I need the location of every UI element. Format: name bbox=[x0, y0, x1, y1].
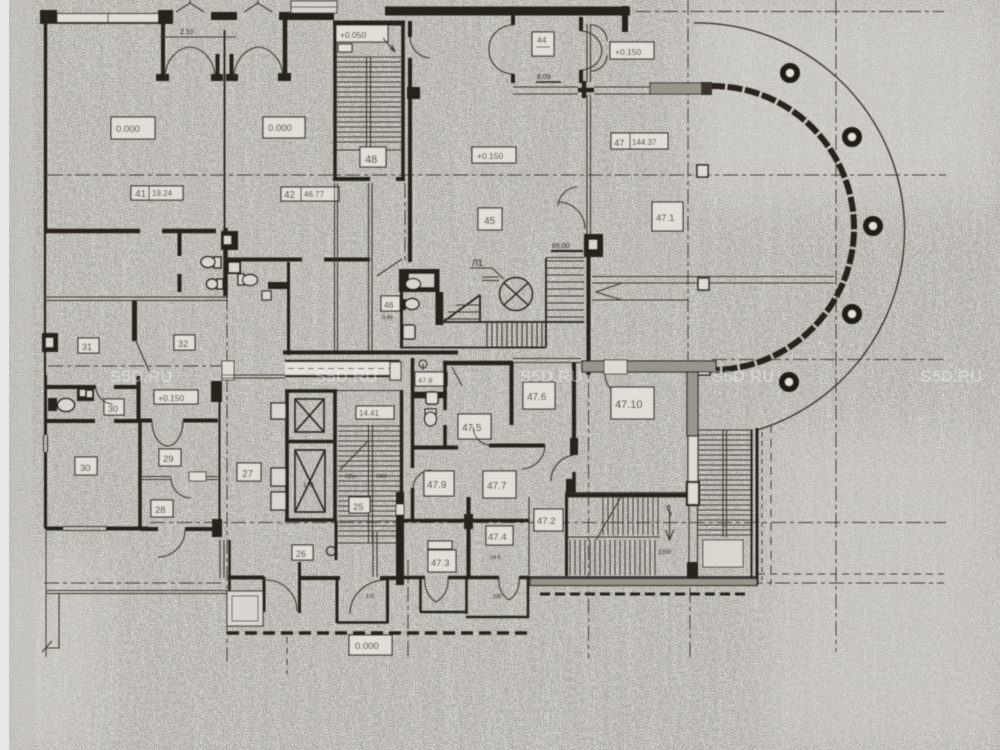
svg-text:31: 31 bbox=[82, 342, 92, 352]
svg-text:26: 26 bbox=[296, 549, 306, 559]
svg-text:8.09: 8.09 bbox=[537, 74, 551, 81]
svg-text:30: 30 bbox=[80, 463, 91, 474]
svg-text:0.000: 0.000 bbox=[116, 124, 140, 135]
svg-text:46.77: 46.77 bbox=[304, 190, 325, 199]
svg-text:47.7: 47.7 bbox=[487, 481, 507, 492]
svg-text:25: 25 bbox=[353, 502, 364, 513]
svg-text:190: 190 bbox=[493, 594, 502, 600]
svg-text:S5D.RU: S5D.RU bbox=[520, 367, 582, 386]
svg-text:47.1: 47.1 bbox=[656, 213, 675, 224]
svg-text:29: 29 bbox=[163, 454, 174, 465]
svg-text:32: 32 bbox=[178, 339, 188, 349]
svg-text:14.6: 14.6 bbox=[490, 555, 501, 561]
svg-text:46: 46 bbox=[384, 300, 394, 310]
svg-text:S5D.RU: S5D.RU bbox=[712, 367, 774, 386]
svg-text:48: 48 bbox=[365, 154, 377, 166]
svg-text:+0.050: +0.050 bbox=[340, 30, 367, 40]
svg-text:27: 27 bbox=[242, 469, 254, 480]
svg-text:+0.150: +0.150 bbox=[615, 47, 642, 57]
svg-text:66.00: 66.00 bbox=[552, 243, 570, 250]
svg-text:+0.150: +0.150 bbox=[477, 151, 504, 161]
svg-text:47.2: 47.2 bbox=[537, 516, 556, 527]
svg-text:28: 28 bbox=[155, 505, 166, 516]
svg-text:44: 44 bbox=[537, 35, 547, 45]
svg-text:170: 170 bbox=[366, 594, 375, 600]
svg-text:+0.150: +0.150 bbox=[158, 393, 185, 403]
svg-text:30: 30 bbox=[108, 404, 118, 414]
svg-text:135o: 135o bbox=[345, 474, 356, 480]
svg-text:S5D.RU: S5D.RU bbox=[920, 367, 982, 386]
svg-text:1200: 1200 bbox=[658, 550, 672, 556]
svg-text:2.10: 2.10 bbox=[180, 29, 194, 36]
svg-text:41: 41 bbox=[135, 189, 147, 200]
svg-text:S5D.RU: S5D.RU bbox=[315, 367, 377, 386]
svg-text:47: 47 bbox=[614, 138, 625, 149]
svg-text:Л1: Л1 bbox=[472, 258, 483, 268]
svg-text:0.000: 0.000 bbox=[355, 641, 379, 652]
svg-text:47.3: 47.3 bbox=[431, 558, 450, 569]
svg-text:0.000: 0.000 bbox=[268, 123, 292, 134]
svg-text:47.10: 47.10 bbox=[615, 399, 643, 411]
svg-text:1Л1: 1Л1 bbox=[303, 482, 315, 489]
svg-text:3.46: 3.46 bbox=[382, 315, 393, 321]
svg-text:S5D.RU: S5D.RU bbox=[110, 367, 172, 386]
svg-text:1400: 1400 bbox=[376, 474, 387, 480]
svg-text:45: 45 bbox=[484, 216, 496, 227]
svg-text:47.4: 47.4 bbox=[488, 532, 507, 543]
svg-text:19.24: 19.24 bbox=[152, 189, 173, 198]
svg-text:47.8: 47.8 bbox=[418, 376, 433, 385]
svg-text:144.37: 144.37 bbox=[632, 138, 657, 147]
svg-text:47.6: 47.6 bbox=[527, 392, 547, 403]
svg-text:47.5: 47.5 bbox=[462, 423, 482, 434]
svg-text:47.9: 47.9 bbox=[427, 480, 447, 491]
svg-text:14.41: 14.41 bbox=[359, 409, 380, 418]
svg-text:42: 42 bbox=[284, 190, 296, 201]
